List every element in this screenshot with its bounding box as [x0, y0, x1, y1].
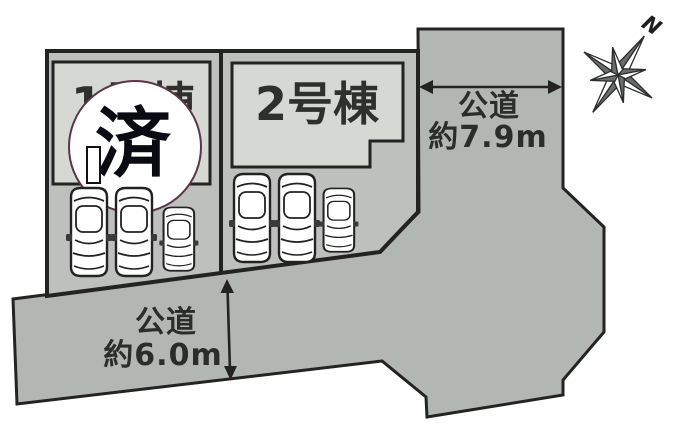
road-bottom-name: 公道 — [135, 305, 197, 340]
road-right-name: 公道 — [458, 89, 520, 124]
car-icon — [229, 174, 275, 262]
car-icon — [66, 188, 112, 276]
road-bottom-width: 約6.0m — [103, 338, 222, 373]
building-2-label: 2号棟 — [255, 77, 380, 131]
site-plan-svg: 1号棟 2号棟 済 公道 約7.9m 公道 約6.0m — [0, 0, 678, 424]
compass-rose-icon: N — [559, 0, 678, 135]
car-icon — [319, 188, 358, 251]
car-icon — [159, 207, 198, 270]
sold-mark: 済 — [95, 99, 172, 188]
entrance-door-marker — [87, 147, 100, 183]
road-right-width: 約7.9m — [428, 120, 547, 155]
site-plan-diagram: 1号棟 2号棟 済 公道 約7.9m 公道 約6.0m — [0, 0, 678, 424]
compass-north-label: N — [638, 10, 666, 40]
car-icon — [111, 188, 157, 276]
car-icon — [274, 174, 320, 262]
